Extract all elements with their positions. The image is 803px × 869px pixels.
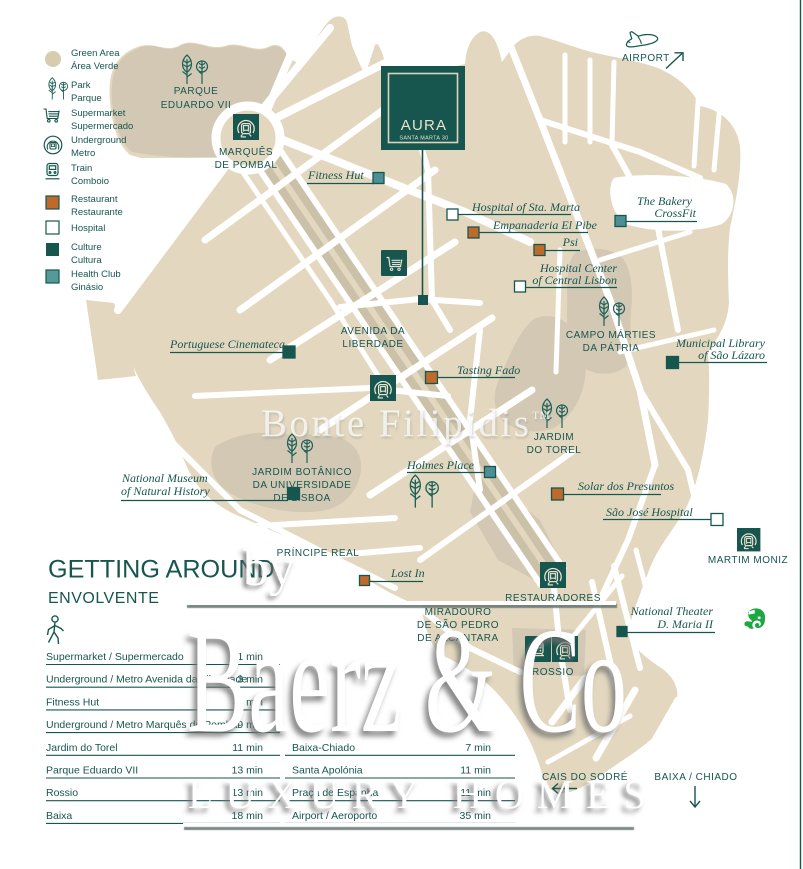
svg-text:National Theater: National Theater (630, 604, 714, 618)
svg-text:Portuguese Cinemateca: Portuguese Cinemateca (169, 337, 285, 351)
svg-text:Rossio: Rossio (46, 787, 78, 799)
svg-text:DO TOREL: DO TOREL (527, 445, 582, 456)
svg-text:Psi: Psi (562, 235, 578, 249)
svg-text:Solar dos Presuntos: Solar dos Presuntos (578, 479, 675, 493)
svg-text:CAMPO MÁRTIES: CAMPO MÁRTIES (566, 328, 656, 341)
svg-text:PARQUE: PARQUE (174, 86, 219, 97)
svg-text:Hospital of Sta. Marta: Hospital of Sta. Marta (471, 200, 580, 214)
svg-text:Área Verde: Área Verde (71, 61, 119, 72)
svg-text:Train: Train (71, 163, 92, 174)
svg-text:Culture: Culture (71, 242, 102, 253)
svg-text:Ginásio: Ginásio (71, 282, 103, 293)
svg-text:Lost In: Lost In (390, 566, 425, 580)
svg-text:of Natural History: of Natural History (121, 484, 210, 498)
svg-text:GETTING AROUND: GETTING AROUND (48, 556, 275, 584)
svg-text:AURA: AURA (401, 117, 447, 134)
svg-text:Comboio: Comboio (71, 176, 109, 187)
svg-text:Parque Eduardo VII: Parque Eduardo VII (46, 765, 138, 777)
svg-text:MARQUÊS: MARQUÊS (219, 145, 273, 158)
svg-text:Jardim do Torel: Jardim do Torel (46, 742, 118, 754)
svg-text:Cultura: Cultura (71, 255, 102, 266)
svg-text:Health Club: Health Club (71, 269, 121, 280)
svg-text:JARDIM BOTÂNICO: JARDIM BOTÂNICO (252, 465, 352, 478)
svg-text:of São Lázaro: of São Lázaro (698, 348, 765, 362)
svg-text:Parque: Parque (71, 93, 102, 104)
svg-text:Tasting Fado: Tasting Fado (457, 363, 520, 377)
svg-text:National Museum: National Museum (121, 471, 208, 485)
svg-text:Green Area: Green Area (71, 48, 120, 59)
svg-text:DA UNIVERSIDADE: DA UNIVERSIDADE (253, 480, 352, 491)
svg-text:Metro: Metro (71, 148, 95, 159)
svg-text:CrossFit: CrossFit (654, 206, 696, 220)
svg-text:Empanaderia El Pibe: Empanaderia El Pibe (492, 218, 598, 232)
svg-text:MARTIM MONIZ: MARTIM MONIZ (708, 555, 788, 566)
svg-text:LIBERDADE: LIBERDADE (342, 339, 403, 350)
svg-text:AVENIDA DA: AVENIDA DA (341, 326, 405, 337)
svg-text:D. Maria II: D. Maria II (656, 617, 714, 631)
svg-text:Underground: Underground (71, 135, 126, 146)
svg-text:DE LISBOA: DE LISBOA (273, 493, 330, 504)
svg-text:DE POMBAL: DE POMBAL (215, 160, 278, 171)
svg-text:of Central Lisbon: of Central Lisbon (532, 273, 617, 287)
svg-text:Supermarket: Supermarket (71, 108, 126, 119)
svg-text:SANTA MARTA 30: SANTA MARTA 30 (399, 136, 448, 142)
svg-text:Fitness Hut: Fitness Hut (46, 696, 99, 708)
svg-text:BAIXA / CHIADO: BAIXA / CHIADO (654, 772, 737, 783)
svg-text:Restaurant: Restaurant (71, 194, 118, 205)
svg-text:Park: Park (71, 80, 91, 91)
svg-text:EDUARDO VII: EDUARDO VII (161, 100, 232, 111)
svg-text:Restaurante: Restaurante (71, 207, 123, 218)
svg-text:Fitness Hut: Fitness Hut (307, 168, 364, 182)
svg-text:São José Hospital: São José Hospital (606, 505, 693, 519)
svg-text:Baixa: Baixa (46, 810, 72, 822)
svg-text:AIRPORT: AIRPORT (622, 53, 670, 64)
svg-text:DA PÁTRIA: DA PÁTRIA (583, 341, 640, 354)
svg-text:ENVOLVENTE: ENVOLVENTE (48, 590, 159, 607)
svg-text:Holmes Place: Holmes Place (406, 458, 475, 472)
svg-text:Hospital: Hospital (71, 223, 105, 234)
svg-text:Supermercado: Supermercado (71, 121, 133, 132)
svg-text:Supermarket / Supermercado: Supermarket / Supermercado (46, 651, 184, 663)
